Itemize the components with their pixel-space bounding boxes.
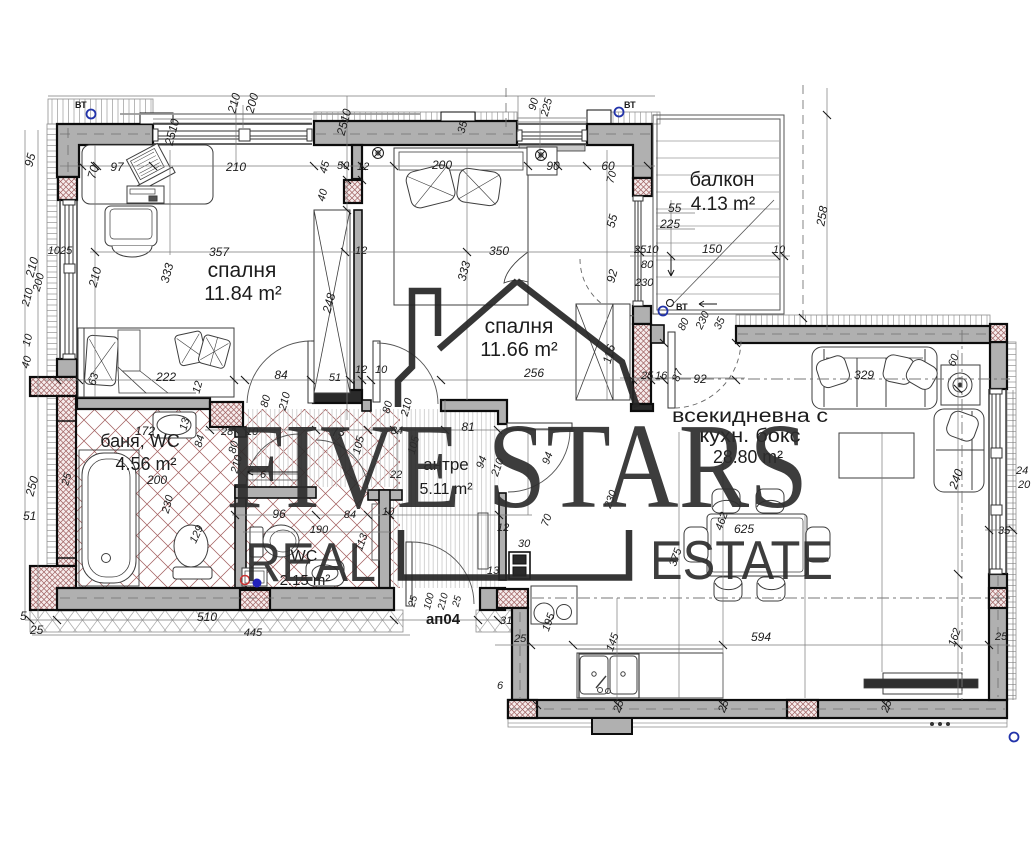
svg-text:20: 20 [1017,479,1031,491]
svg-text:222: 222 [155,370,176,384]
svg-text:357: 357 [209,245,230,259]
svg-text:90: 90 [546,159,560,173]
svg-text:25: 25 [640,370,654,382]
svg-text:256: 256 [523,366,544,380]
svg-text:10: 10 [773,244,786,256]
svg-text:12: 12 [357,161,369,173]
svg-text:ап04: ап04 [426,611,461,628]
svg-text:225: 225 [659,217,680,231]
svg-text:5: 5 [20,609,27,623]
svg-text:350: 350 [489,244,509,258]
svg-text:31: 31 [500,615,512,627]
svg-text:спалня: спалня [208,259,277,282]
svg-text:10: 10 [375,364,388,376]
svg-text:16: 16 [655,370,668,382]
svg-text:2510: 2510 [633,244,659,256]
svg-text:55: 55 [668,201,682,215]
svg-text:11.66 m²: 11.66 m² [480,339,558,361]
svg-text:4.56 m²: 4.56 m² [115,454,176,474]
svg-text:210: 210 [225,160,246,174]
svg-text:445: 445 [244,627,263,639]
svg-text:балкон: балкон [690,169,755,191]
svg-text:25: 25 [29,623,44,637]
svg-text:97: 97 [110,160,125,174]
svg-text:6: 6 [497,680,504,692]
svg-text:4.13 m²: 4.13 m² [691,194,755,215]
svg-text:FIVE STARS: FIVE STARS [226,399,808,534]
svg-text:230: 230 [634,277,654,289]
svg-text:ВТ: ВТ [624,100,636,110]
svg-text:510: 510 [197,610,217,624]
svg-text:1025: 1025 [48,245,73,257]
svg-text:ВТ: ВТ [75,100,87,110]
svg-text:25: 25 [994,631,1008,643]
svg-text:200: 200 [146,473,167,487]
svg-text:84: 84 [274,368,288,382]
svg-text:594: 594 [751,630,771,644]
svg-text:24: 24 [1015,465,1028,477]
svg-text:50: 50 [337,160,350,172]
svg-text:12: 12 [355,364,367,376]
svg-text:спалня: спалня [485,315,554,338]
svg-text:92: 92 [693,372,707,386]
svg-text:51: 51 [23,509,36,523]
svg-text:баня, WC: баня, WC [100,431,180,451]
svg-text:25: 25 [513,633,527,645]
svg-text:30: 30 [518,538,531,550]
svg-text:51: 51 [329,372,341,384]
svg-text:11.84 m²: 11.84 m² [204,283,282,305]
svg-text:ESTATE: ESTATE [650,529,833,591]
svg-text:200: 200 [431,158,452,172]
svg-text:12: 12 [355,245,367,257]
svg-text:ВТ: ВТ [676,302,688,312]
svg-text:150: 150 [702,242,722,256]
svg-text:80: 80 [641,259,654,271]
svg-text:329: 329 [854,368,874,382]
svg-text:REAL: REAL [245,531,376,593]
svg-text:35: 35 [998,525,1011,537]
